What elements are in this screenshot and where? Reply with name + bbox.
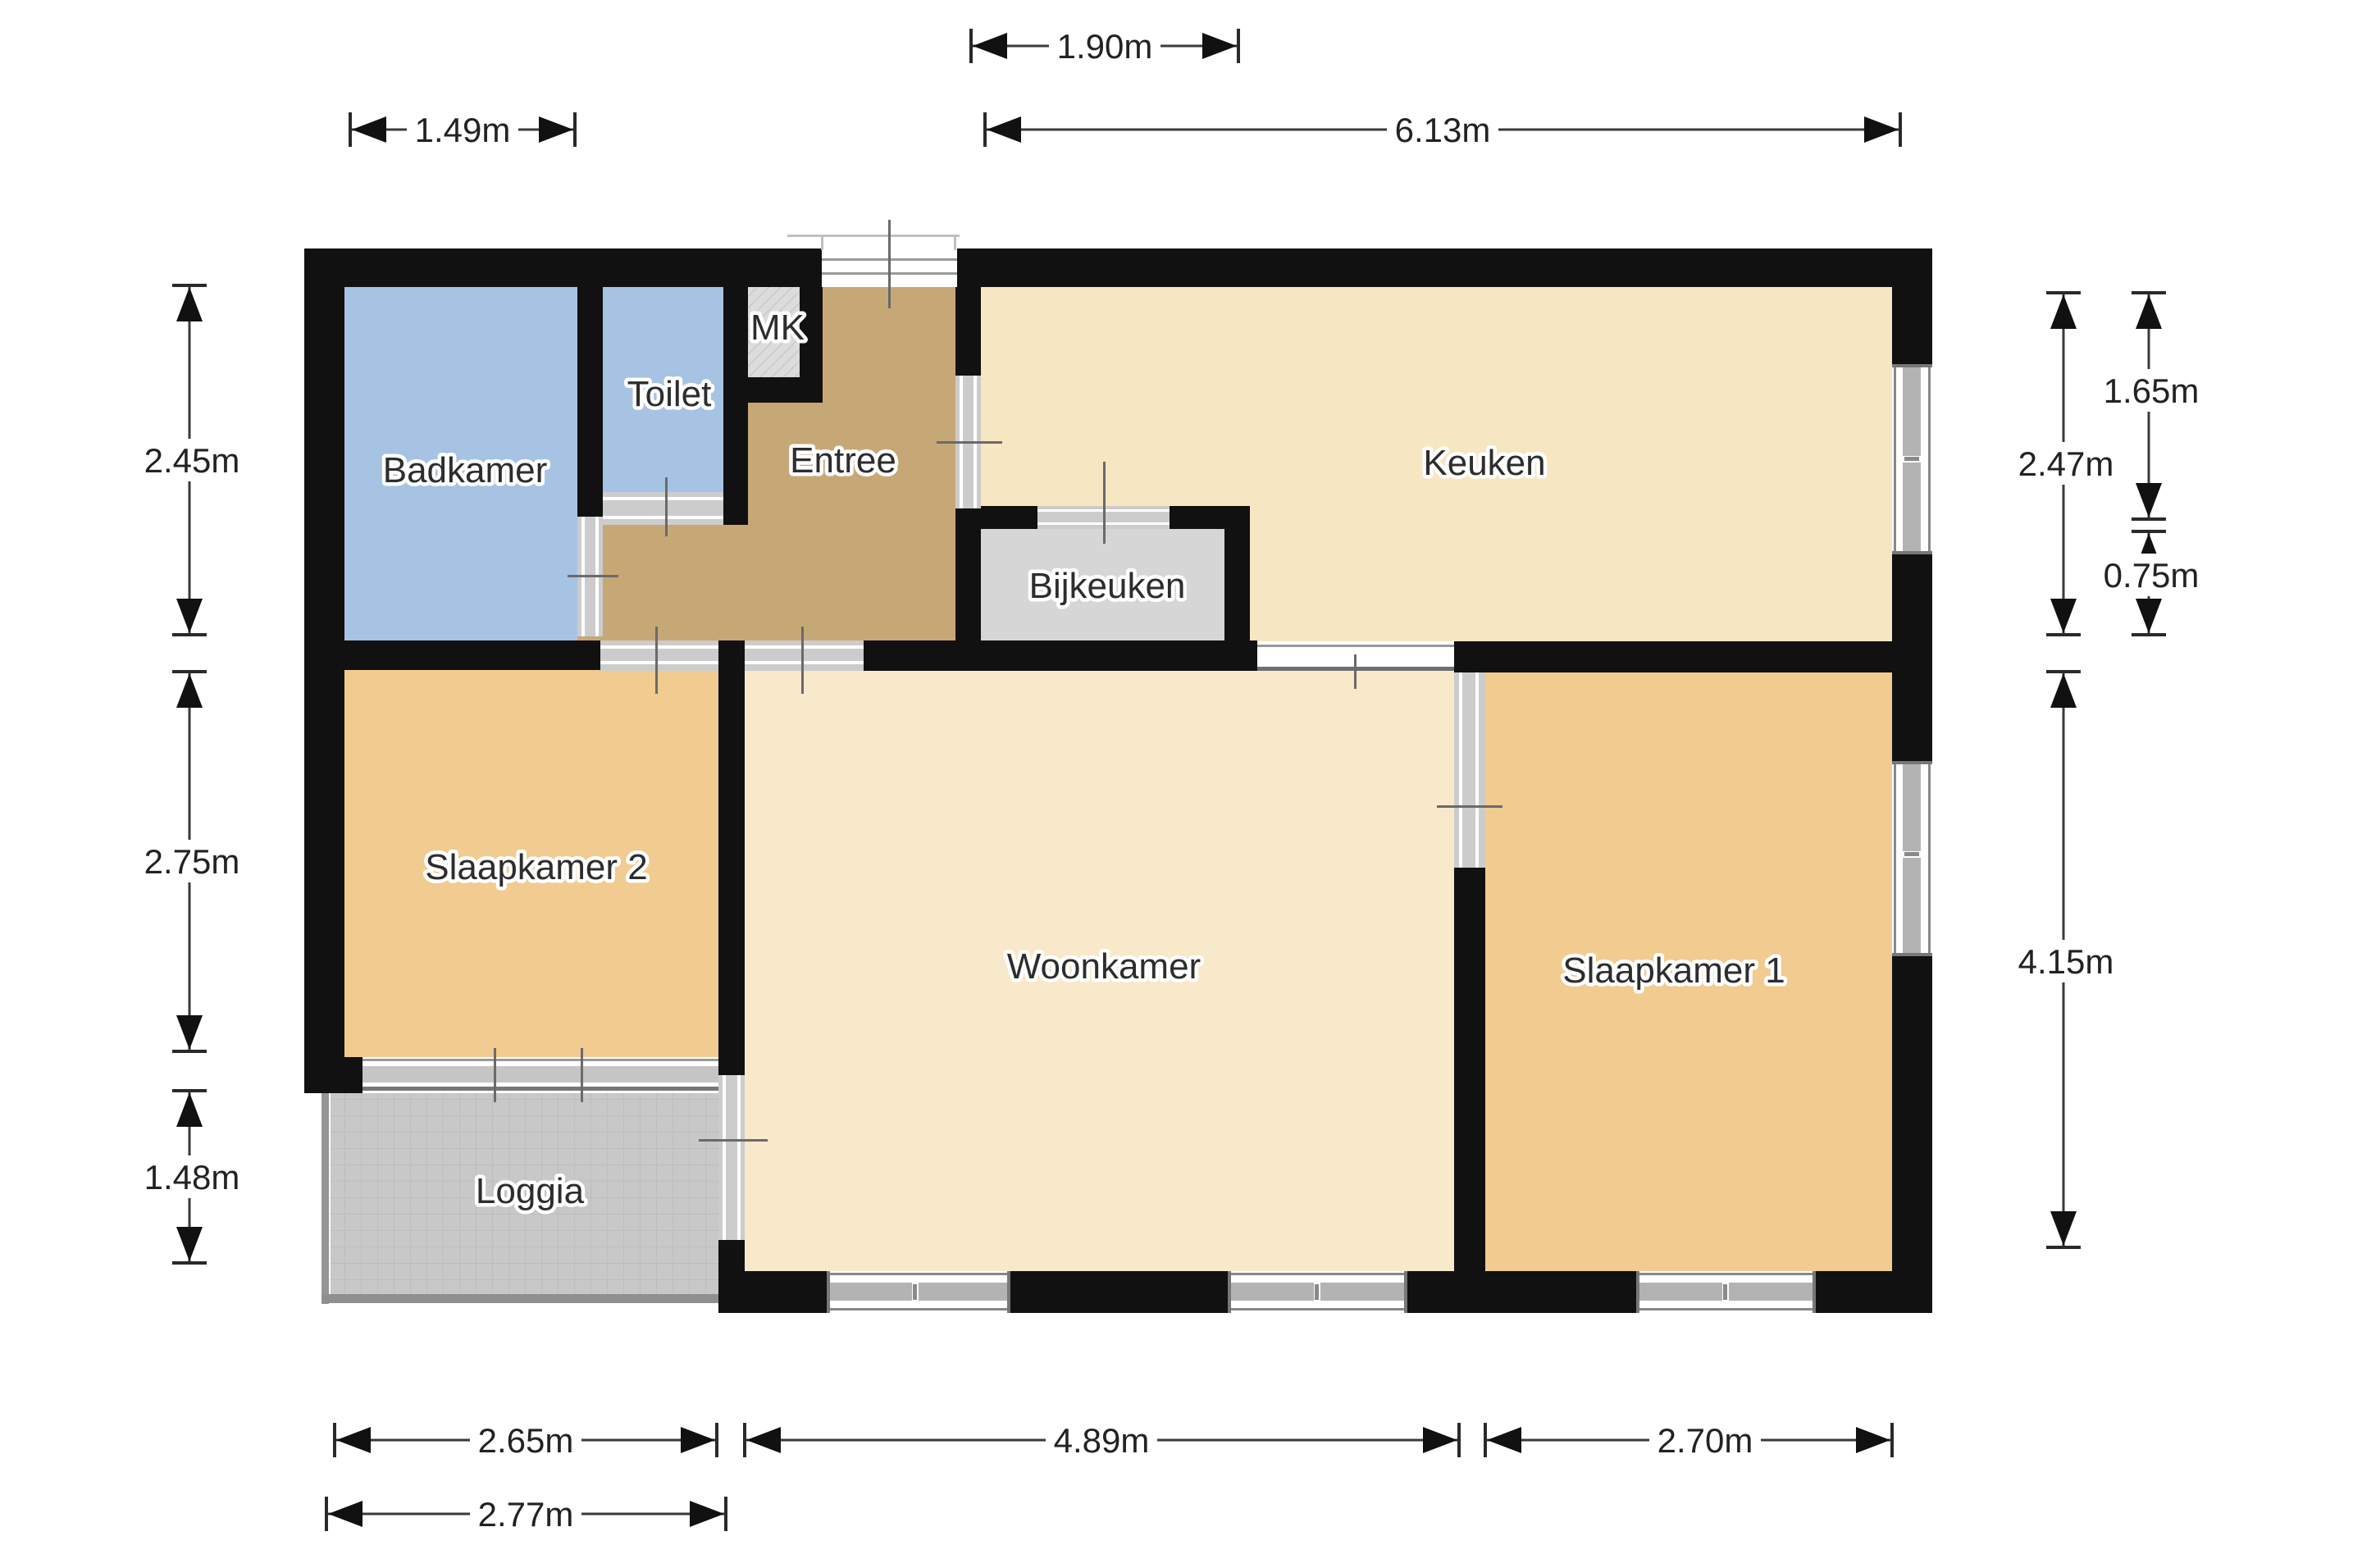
svg-text:4.15m: 4.15m [2018,942,2114,981]
svg-text:Woonkamer: Woonkamer [1007,946,1201,987]
svg-text:2.47m: 2.47m [2018,444,2114,483]
svg-text:Badkamer: Badkamer [383,450,548,490]
svg-text:1.49m: 1.49m [415,111,511,149]
svg-text:Bijkeuken: Bijkeuken [1029,566,1186,606]
svg-text:2.65m: 2.65m [478,1421,574,1460]
svg-text:0.75m: 0.75m [2104,556,2200,595]
svg-text:2.45m: 2.45m [144,441,240,480]
svg-text:6.13m: 6.13m [1395,111,1491,149]
svg-text:1.90m: 1.90m [1057,27,1153,66]
svg-text:MK: MK [750,308,805,348]
svg-text:Loggia: Loggia [476,1171,585,1211]
svg-text:Slaapkamer 2: Slaapkamer 2 [425,847,647,887]
svg-text:1.65m: 1.65m [2104,371,2200,410]
svg-text:2.70m: 2.70m [1658,1421,1753,1460]
svg-text:Slaapkamer 1: Slaapkamer 1 [1562,950,1785,991]
svg-text:4.89m: 4.89m [1054,1421,1150,1460]
svg-text:2.75m: 2.75m [144,842,240,881]
svg-text:2.77m: 2.77m [478,1495,574,1534]
svg-text:1.48m: 1.48m [144,1158,240,1197]
svg-text:Keuken: Keuken [1423,443,1545,483]
svg-text:Toilet: Toilet [627,374,712,414]
svg-text:Entree: Entree [790,440,896,481]
